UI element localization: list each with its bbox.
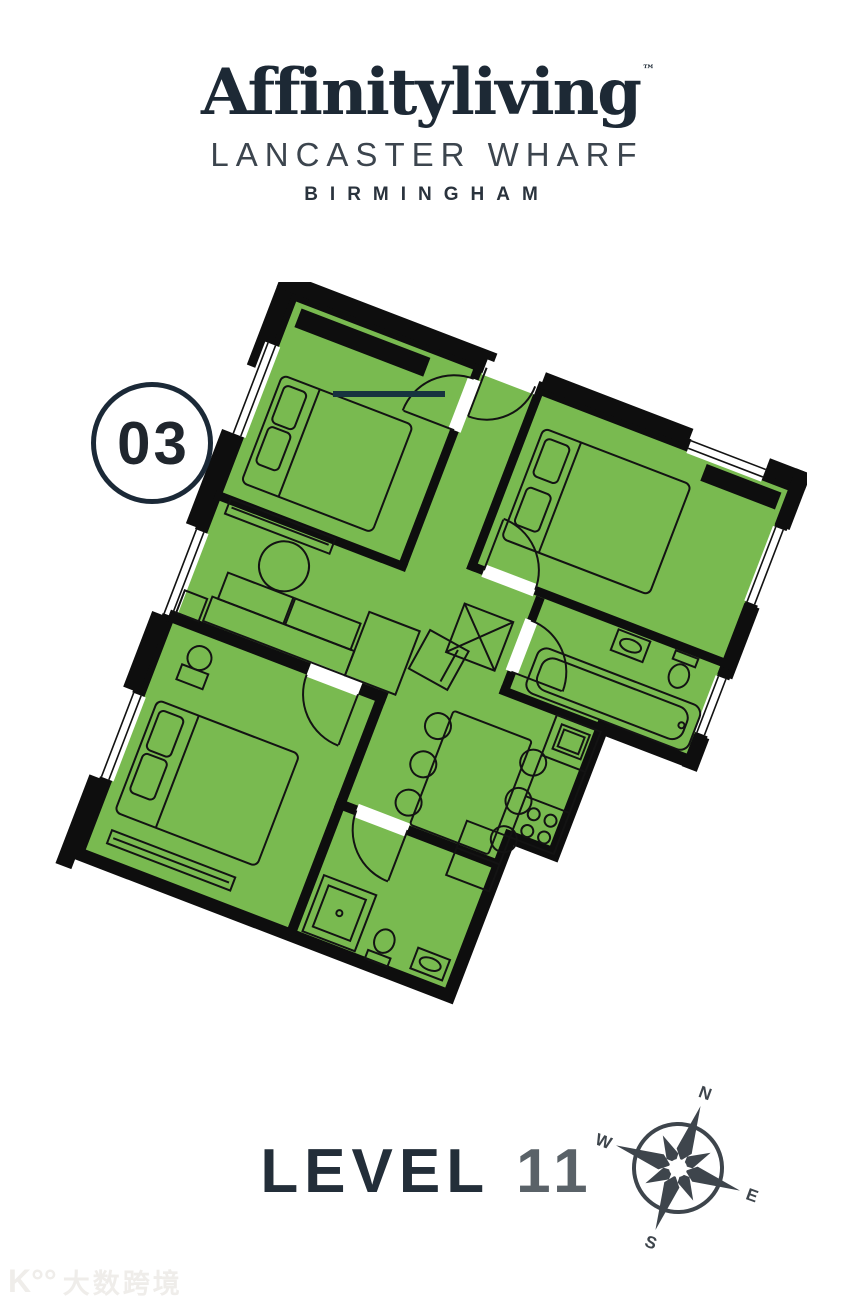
level-number: 11	[516, 1137, 594, 1206]
brand-logo: Affinityliving™	[0, 58, 854, 128]
trademark-symbol: ™	[642, 63, 655, 78]
development-name: LANCASTER WHARF	[0, 136, 854, 174]
brand-header: Affinityliving™ LANCASTER WHARF BIRMINGH…	[0, 58, 854, 206]
section-marker-line	[333, 391, 445, 397]
flyer-page: Affinityliving™ LANCASTER WHARF BIRMINGH…	[0, 0, 854, 1312]
compass-north-label: N	[696, 1082, 714, 1104]
level-word: LEVEL	[260, 1137, 490, 1206]
city-name: BIRMINGHAM	[0, 184, 854, 206]
compass-rose-icon: N E S W	[588, 1078, 768, 1258]
unit-number: 03	[114, 409, 190, 478]
brand-logo-text: Affinityliving	[201, 55, 640, 130]
compass-west-label: W	[593, 1130, 615, 1154]
watermark-logo-icon: K°°	[8, 1263, 57, 1300]
compass-east-label: E	[743, 1185, 760, 1207]
watermark: K°° 大数跨境	[8, 1262, 183, 1301]
compass-south-label: S	[642, 1232, 659, 1254]
unit-number-badge: 03	[91, 382, 213, 504]
watermark-text: 大数跨境	[63, 1262, 183, 1301]
